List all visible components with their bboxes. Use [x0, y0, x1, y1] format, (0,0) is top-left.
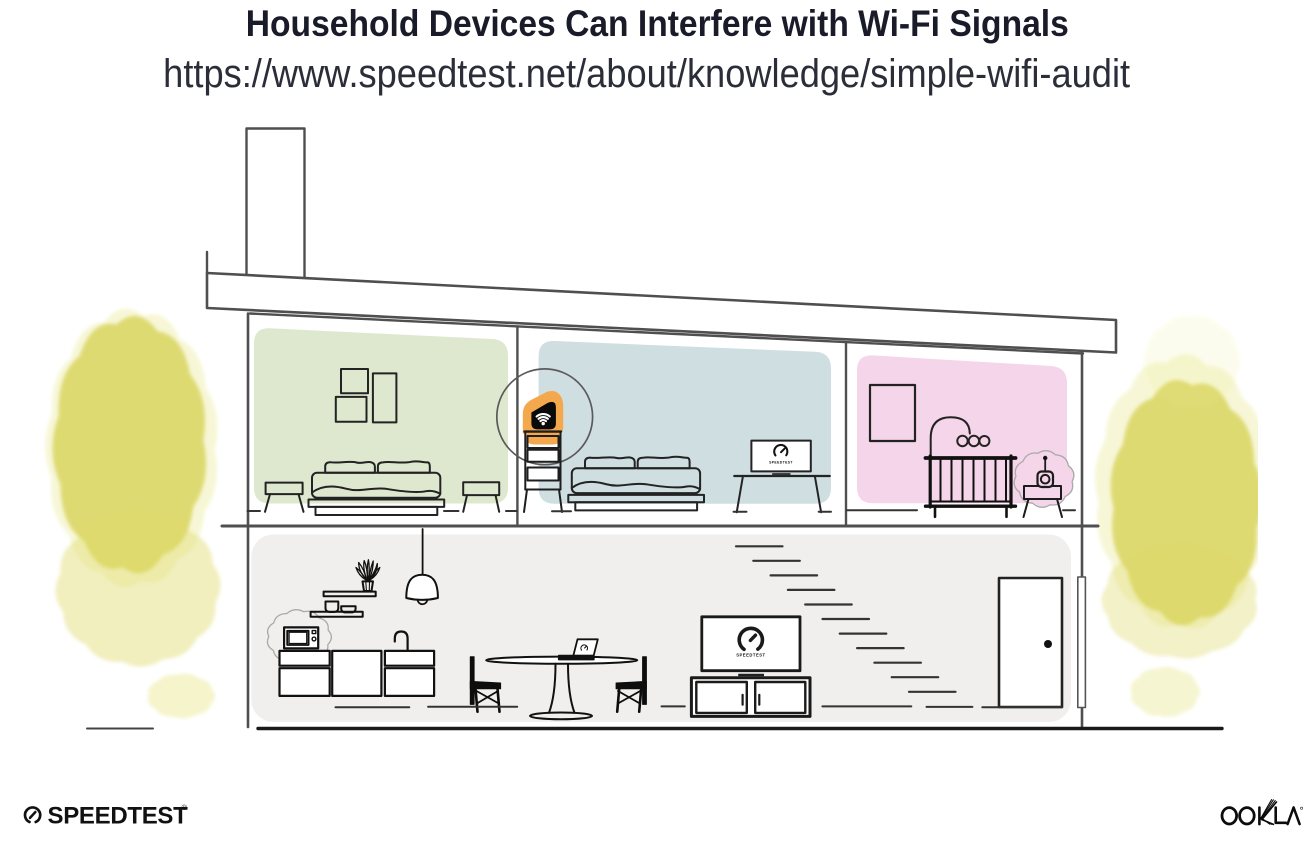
- svg-text:SPEEDTEST: SPEEDTEST: [769, 461, 793, 465]
- svg-text:®: ®: [182, 803, 188, 812]
- svg-text:SPEEDTEST: SPEEDTEST: [48, 803, 189, 830]
- svg-text:SPEEDTEST: SPEEDTEST: [736, 653, 765, 658]
